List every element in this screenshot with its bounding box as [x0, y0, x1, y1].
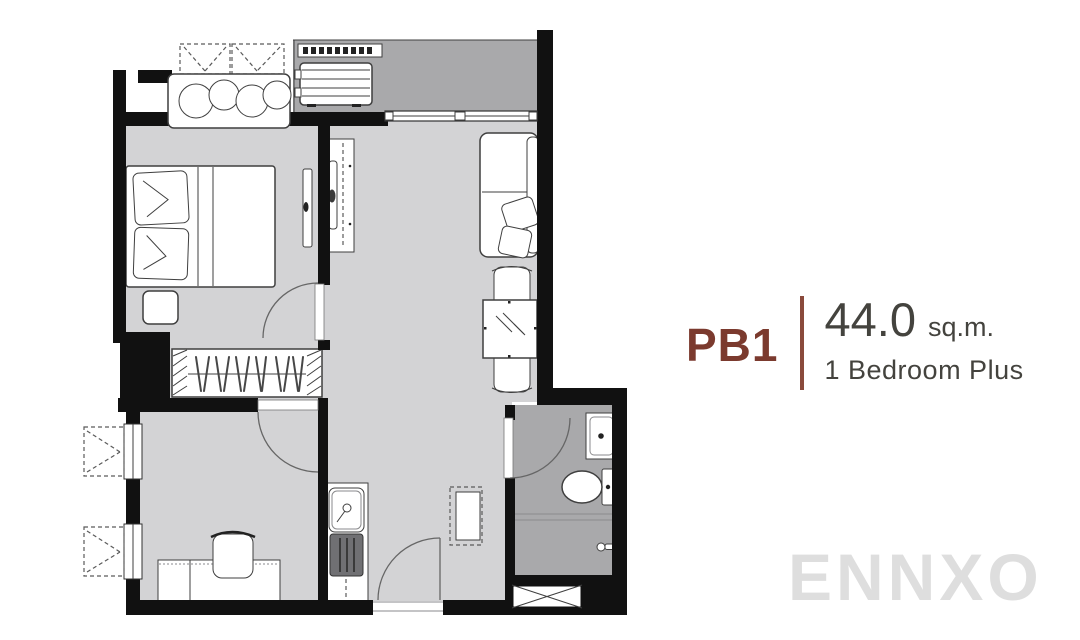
- unit-code: PB1: [686, 322, 778, 390]
- window: [124, 424, 142, 479]
- washbasin: [586, 413, 616, 459]
- double-bed: [126, 166, 275, 287]
- divider-line: [800, 296, 804, 390]
- louver-vent: [298, 44, 382, 57]
- ac-condenser-unit: [295, 63, 372, 107]
- kitchen-counter: [325, 483, 368, 603]
- planter-plants: [168, 74, 291, 128]
- watermark: ENNXO: [788, 544, 1043, 610]
- desk-chair: [211, 532, 255, 578]
- pillow: [133, 171, 190, 226]
- pillow: [133, 227, 189, 280]
- wardrobe: [172, 349, 322, 397]
- tv-console: [327, 139, 354, 252]
- service-shaft: [512, 585, 582, 608]
- sofa: [480, 133, 540, 259]
- area-row: 44.0 sq.m.: [824, 296, 1023, 343]
- area-value: 44.0: [824, 296, 915, 343]
- unit-details: 44.0 sq.m. 1 Bedroom Plus: [824, 296, 1023, 390]
- area-unit: sq.m.: [928, 314, 994, 341]
- ac-ledge-symbol: [180, 44, 284, 74]
- bedroom-tv: [303, 169, 312, 247]
- window: [124, 524, 142, 579]
- ac-ledge-symbol: [84, 527, 124, 576]
- nightstand: [143, 291, 178, 324]
- balcony-sliding-window: [385, 111, 537, 121]
- unit-info: PB1 44.0 sq.m. 1 Bedroom Plus: [686, 296, 1024, 390]
- dining-table: [483, 300, 537, 358]
- floorplan-page: PB1 44.0 sq.m. 1 Bedroom Plus ENNXO: [0, 0, 1080, 640]
- unit-type: 1 Bedroom Plus: [824, 355, 1023, 386]
- kitchen-sink: [329, 488, 364, 532]
- ac-ledge-symbol: [84, 427, 124, 476]
